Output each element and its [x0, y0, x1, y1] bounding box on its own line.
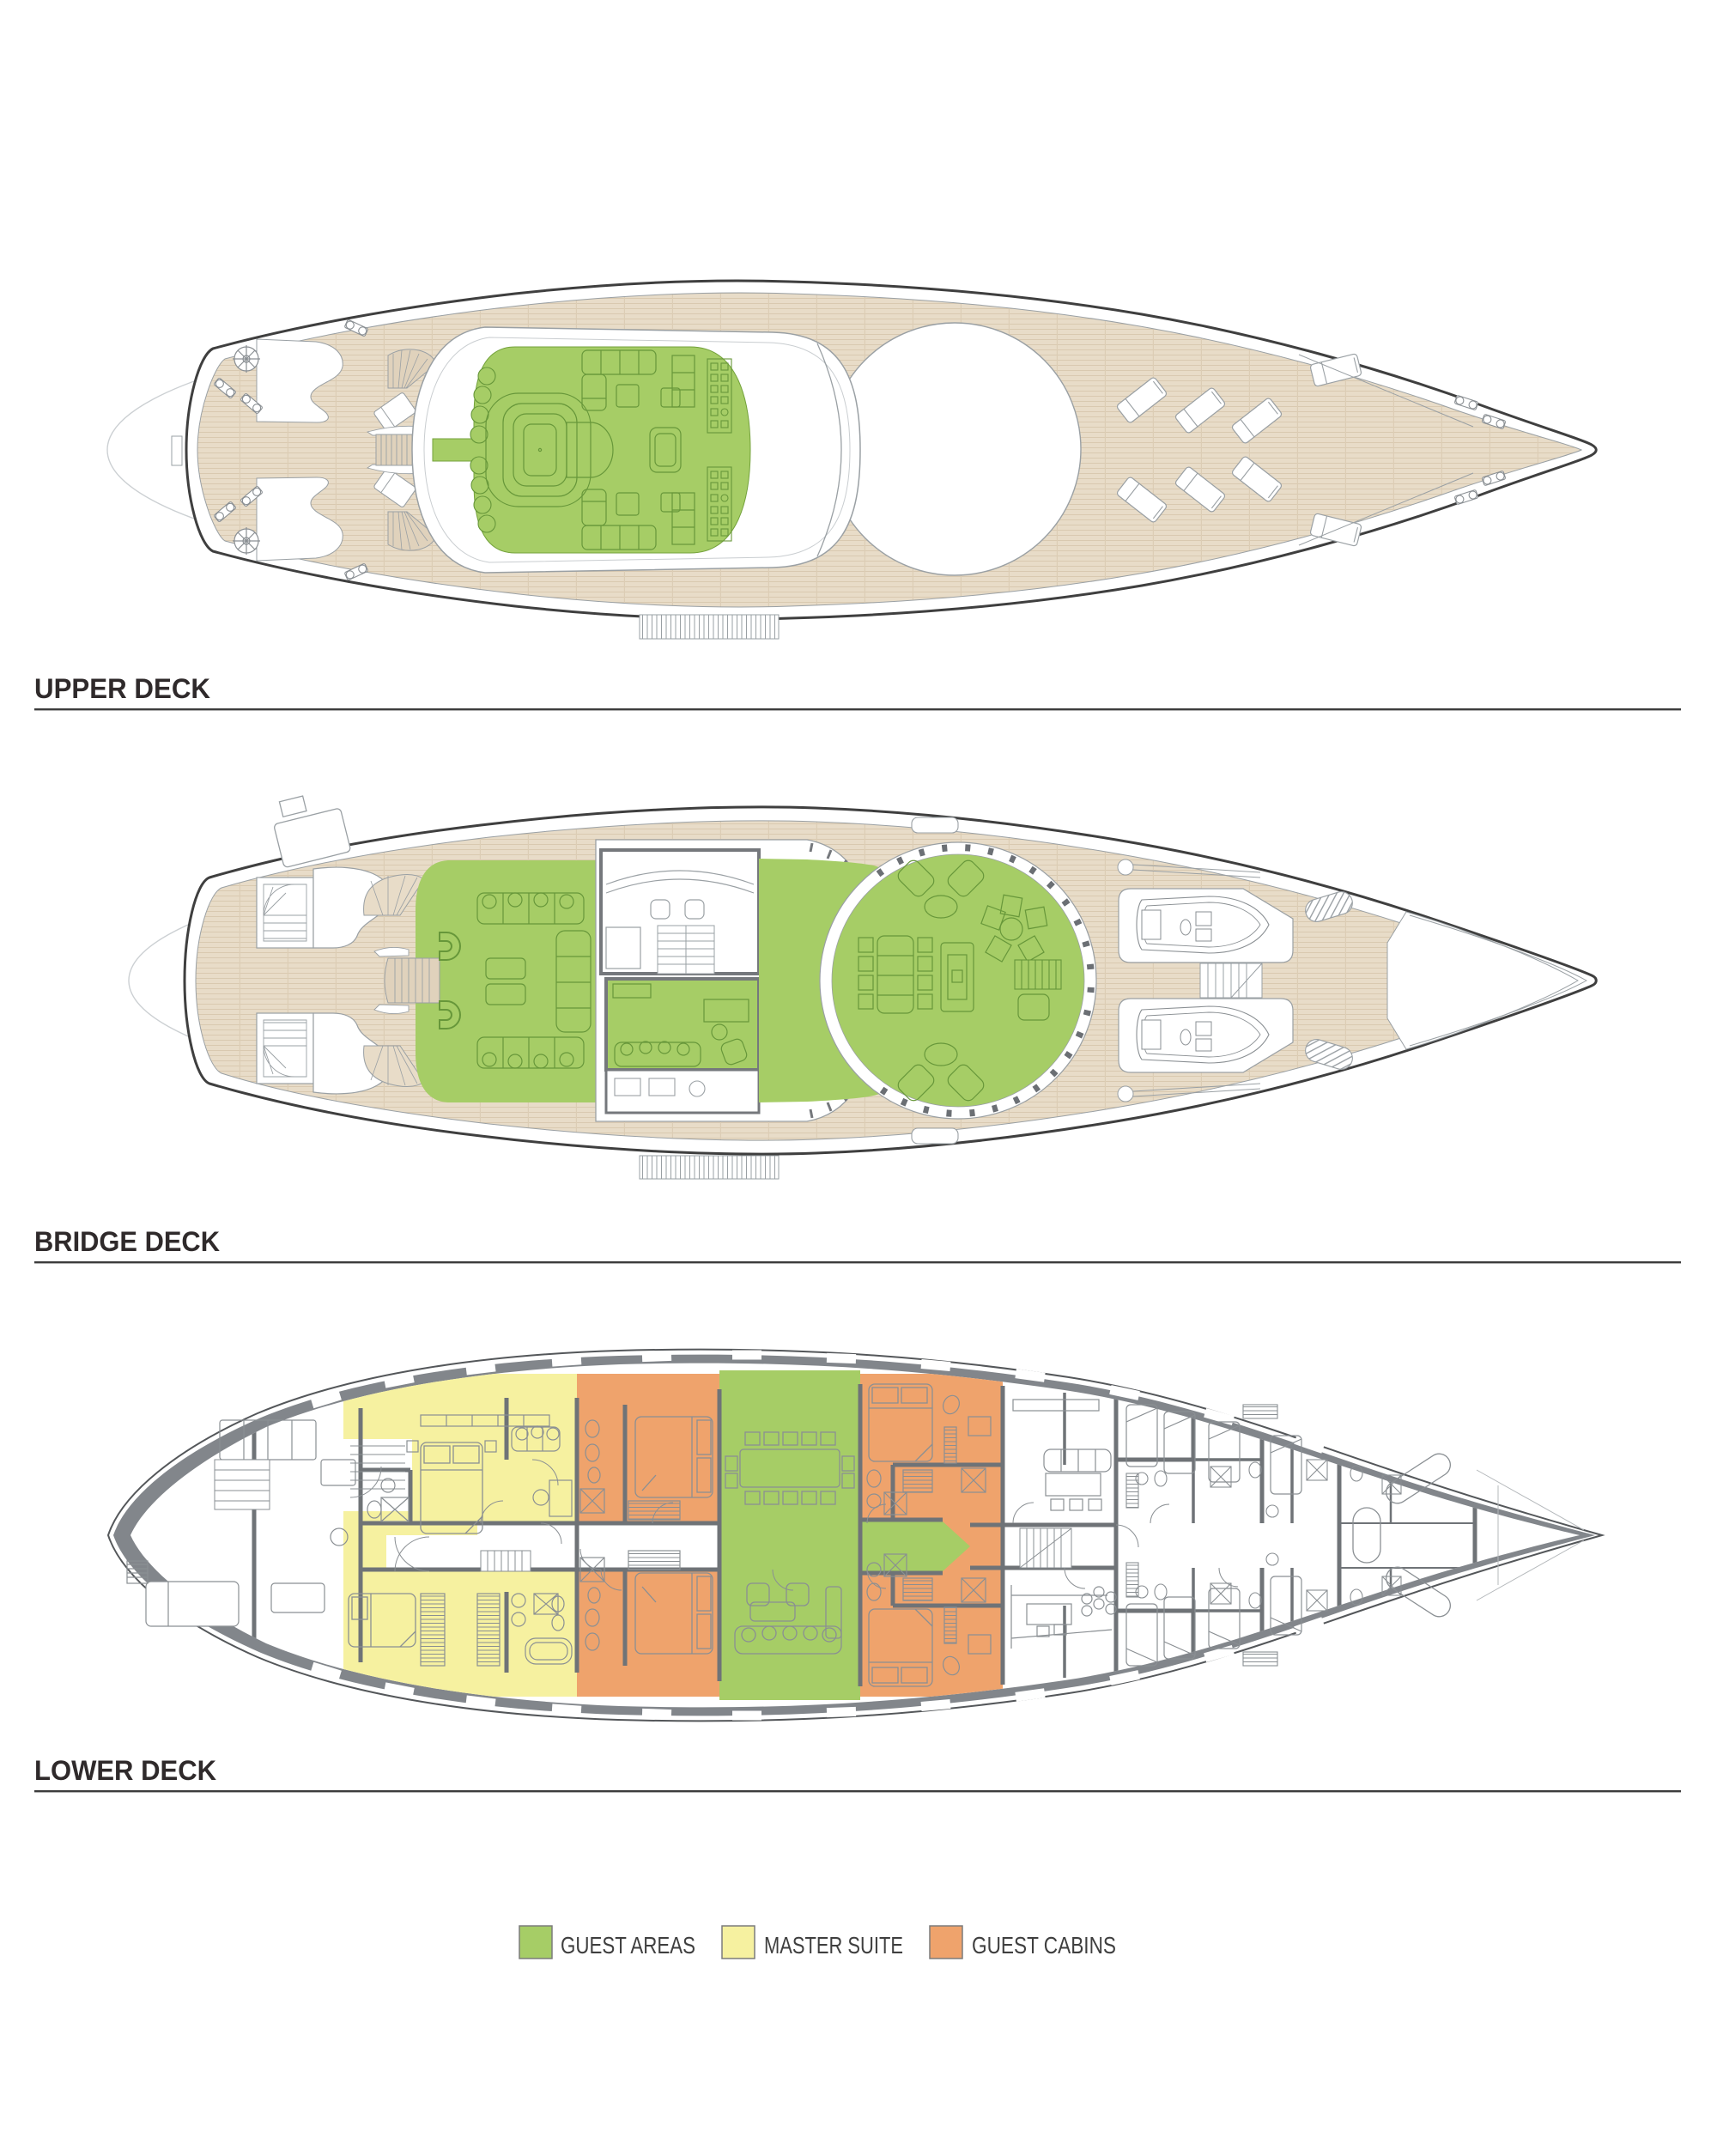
svg-text:BRIDGE DECK: BRIDGE DECK	[34, 1226, 220, 1257]
svg-text:GUEST AREAS: GUEST AREAS	[561, 1932, 695, 1959]
svg-text:MASTER SUITE: MASTER SUITE	[764, 1932, 903, 1959]
svg-text:LOWER DECK: LOWER DECK	[34, 1755, 216, 1786]
svg-text:UPPER DECK: UPPER DECK	[34, 673, 210, 704]
svg-text:GUEST CABINS: GUEST CABINS	[972, 1932, 1116, 1959]
